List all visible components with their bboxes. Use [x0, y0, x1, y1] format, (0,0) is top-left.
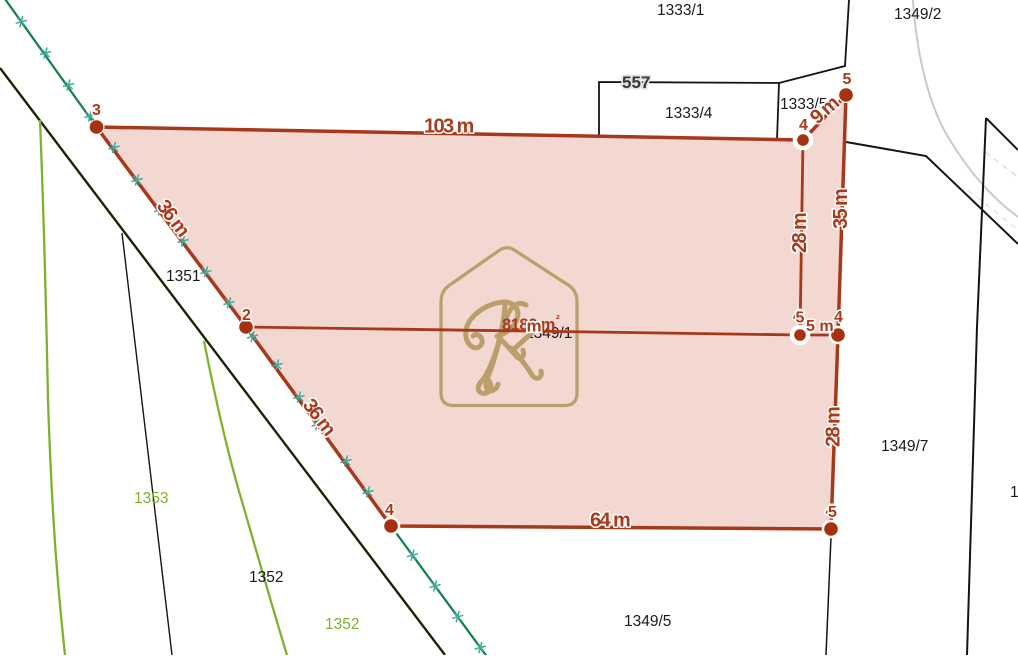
svg-text:2: 2 — [242, 307, 251, 324]
svg-text:1333/1: 1333/1 — [657, 2, 704, 19]
svg-text:1353: 1353 — [134, 490, 168, 507]
svg-text:4: 4 — [799, 117, 808, 134]
svg-text:557: 557 — [622, 73, 650, 92]
svg-text:64 m: 64 m — [590, 510, 630, 532]
svg-text:m: m — [527, 317, 542, 336]
svg-text:1: 1 — [1010, 484, 1018, 501]
svg-text:1352: 1352 — [325, 616, 359, 633]
svg-text:5 m: 5 m — [806, 318, 834, 335]
svg-text:²: ² — [556, 314, 560, 326]
svg-text:1333/4: 1333/4 — [665, 105, 713, 122]
svg-text:1352: 1352 — [249, 569, 283, 586]
svg-text:35 m: 35 m — [830, 189, 852, 229]
svg-text:1349/7: 1349/7 — [881, 438, 928, 455]
svg-text:103 m: 103 m — [424, 116, 474, 138]
svg-text:28 m: 28 m — [789, 213, 811, 253]
svg-text:5: 5 — [796, 310, 805, 327]
svg-text:1349/5: 1349/5 — [624, 613, 671, 630]
svg-text:4: 4 — [834, 309, 843, 326]
svg-text:5: 5 — [828, 504, 837, 521]
svg-text:4: 4 — [385, 502, 394, 519]
svg-text:28 m: 28 m — [823, 407, 845, 447]
svg-text:5: 5 — [843, 71, 852, 88]
svg-text:1349/2: 1349/2 — [894, 6, 941, 23]
svg-text:1351: 1351 — [166, 268, 200, 285]
svg-text:3: 3 — [92, 102, 101, 119]
